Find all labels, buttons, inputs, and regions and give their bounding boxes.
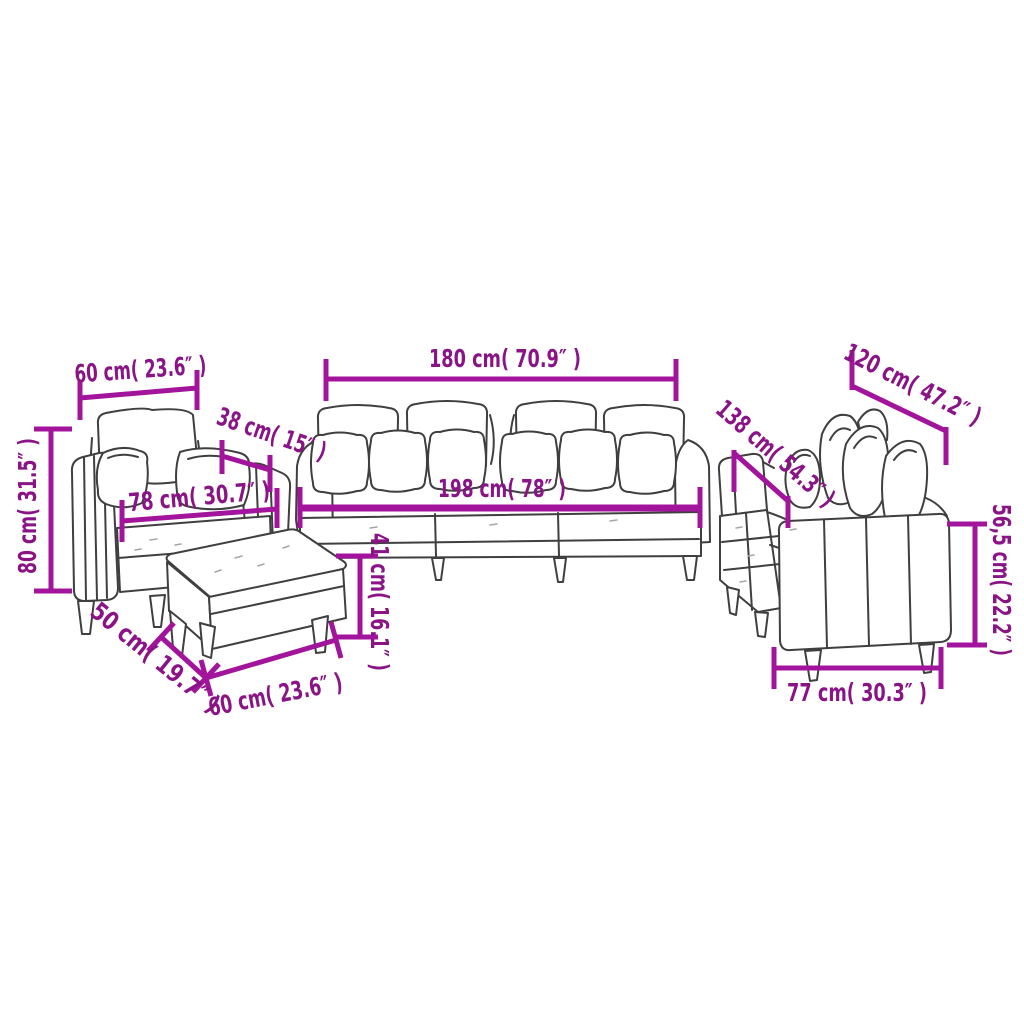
label-sofa-back-width: 180 cm( 70.9″ ) (429, 344, 581, 373)
sofa-seat-divider (558, 513, 559, 556)
loveseat-front-panel (779, 514, 951, 650)
sofa-pillow (618, 433, 676, 494)
loveseat-leg (727, 587, 739, 615)
sofa-seat-base (300, 512, 701, 558)
label-loveseat-depth: 77 cm( 30.3″ ) (787, 678, 927, 707)
diagram-svg: 60 cm( 23.6″ ) 38 cm( 15″ ) 78 cm( 30.7″… (0, 0, 1024, 1024)
label-loveseat-seat-height: 56,5 cm( 22.2″ ) (987, 504, 1016, 656)
loveseat-pillow (843, 426, 888, 516)
label-sofa-total-width: 198 cm( 78″ ) (438, 474, 566, 503)
label-footstool-height: 41 cm( 16.1″ ) (365, 533, 394, 671)
label-armchair-height: 80 cm( 31.5″ ) (13, 438, 42, 574)
sofa-pillow (559, 430, 617, 491)
loveseat-leg (755, 612, 768, 637)
sofa-seat-divider (435, 514, 436, 556)
sofa-pillow (369, 431, 427, 492)
sofa-set-dimensions-diagram: 60 cm( 23.6″ ) 38 cm( 15″ ) 78 cm( 30.7″… (0, 0, 1024, 1024)
